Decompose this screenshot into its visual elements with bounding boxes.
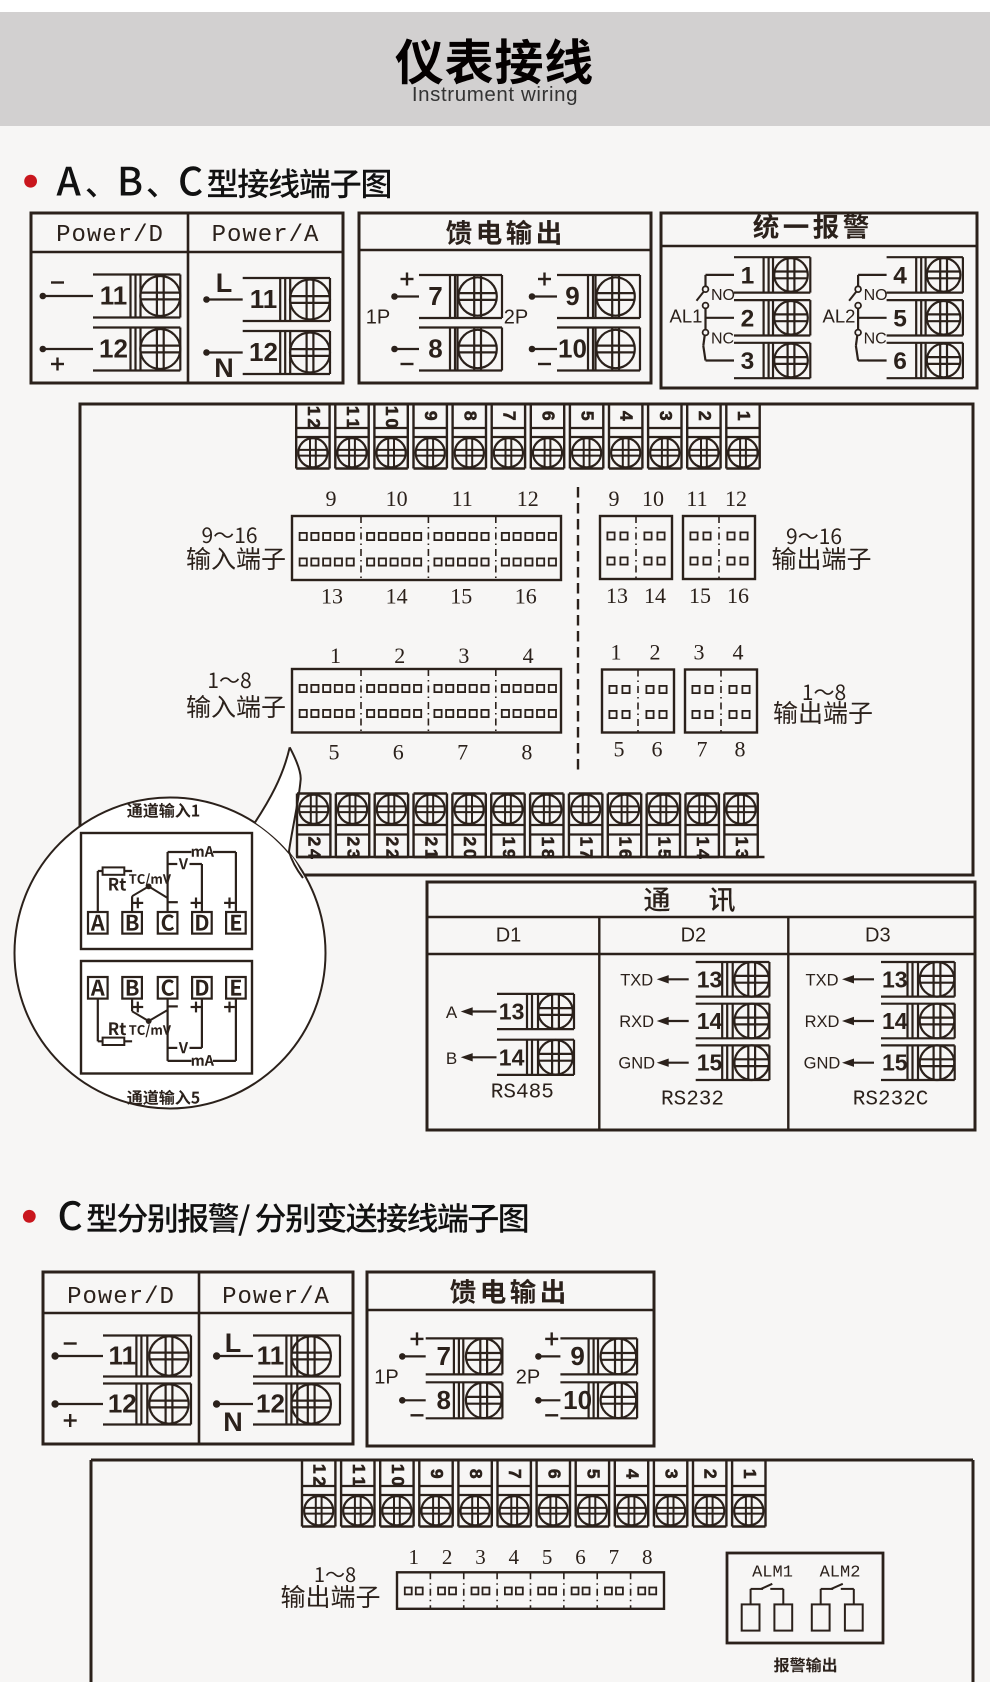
svg-text:11: 11 [109,1341,137,1371]
svg-text:15: 15 [689,583,711,608]
svg-text:3: 3 [662,1469,682,1479]
svg-text:B: B [446,1049,457,1068]
svg-text:GND: GND [804,1055,841,1073]
svg-text:A: A [446,1003,458,1022]
svg-text:6: 6 [575,1545,586,1569]
svg-text:2: 2 [304,418,324,428]
svg-text:12: 12 [517,486,539,511]
svg-text:2: 2 [305,836,325,846]
svg-text:7: 7 [505,1469,525,1479]
svg-text:4: 4 [893,262,907,289]
svg-text:2: 2 [741,305,755,332]
svg-text:RS232C: RS232C [853,1088,929,1111]
svg-text:NC: NC [711,330,734,347]
svg-text:10: 10 [558,334,587,364]
svg-text:5: 5 [583,1469,603,1479]
svg-text:16: 16 [515,584,537,609]
svg-text:8: 8 [460,411,480,421]
svg-text:7: 7 [697,737,708,762]
svg-text:1: 1 [408,1545,419,1569]
svg-text:Power/A: Power/A [222,1284,330,1311]
svg-text:7: 7 [609,1545,620,1569]
svg-text:1P: 1P [374,1366,398,1388]
svg-text:1: 1 [740,1469,760,1479]
svg-text:NO: NO [711,287,735,304]
svg-text:14: 14 [882,1008,908,1034]
svg-text:2: 2 [344,836,364,846]
svg-text:3: 3 [741,348,755,375]
svg-text:ALM2: ALM2 [820,1564,861,1583]
svg-text:11: 11 [100,281,128,311]
svg-text:1: 1 [343,418,363,428]
svg-text:RS232: RS232 [661,1088,724,1111]
svg-text:8: 8 [521,740,532,765]
svg-text:Instrument wiring: Instrument wiring [412,83,578,106]
svg-text:13: 13 [697,966,723,992]
svg-text:8: 8 [642,1545,653,1569]
svg-text:6: 6 [652,737,663,762]
svg-text:3: 3 [458,643,469,668]
svg-text:D2: D2 [681,925,707,947]
svg-text:RS485: RS485 [491,1081,554,1104]
svg-text:NO: NO [864,287,888,304]
svg-text:6: 6 [539,411,559,421]
svg-text:Power/D: Power/D [67,1284,175,1311]
svg-text:5: 5 [542,1545,553,1569]
svg-text:Power/A: Power/A [212,222,320,249]
svg-text:2: 2 [394,643,405,668]
svg-text:ALM1: ALM1 [752,1564,793,1583]
svg-text:12: 12 [256,1389,285,1419]
svg-text:1: 1 [577,836,597,846]
svg-text:5: 5 [893,305,907,332]
svg-text:1: 1 [732,836,752,846]
svg-text:2: 2 [701,1469,721,1479]
svg-text:NC: NC [864,330,887,347]
svg-text:1P: 1P [366,307,390,329]
svg-text:12: 12 [108,1389,137,1419]
svg-text:9: 9 [565,281,579,311]
svg-text:3: 3 [656,411,676,421]
svg-text:1: 1 [538,836,558,846]
svg-text:13: 13 [882,966,908,992]
svg-text:2: 2 [460,836,480,846]
svg-text:12: 12 [99,334,128,364]
svg-text:1: 1 [304,406,324,416]
svg-text:1: 1 [741,262,755,289]
svg-text:9: 9 [427,1469,447,1479]
svg-text:1: 1 [616,836,636,846]
svg-text:15: 15 [882,1050,908,1076]
svg-text:2P: 2P [504,307,528,329]
svg-text:0: 0 [388,1476,408,1486]
svg-text:1: 1 [654,836,674,846]
svg-text:14: 14 [697,1008,723,1034]
svg-text:D1: D1 [496,925,522,947]
svg-text:1: 1 [611,640,622,665]
svg-text:1: 1 [693,836,713,846]
svg-text:TXD: TXD [806,971,839,989]
svg-text:0: 0 [382,418,402,428]
svg-text:9: 9 [326,486,337,511]
svg-text:2: 2 [695,411,715,421]
svg-text:11: 11 [686,486,707,511]
svg-text:11: 11 [257,1341,285,1371]
svg-text:1: 1 [388,1464,408,1474]
svg-text:2: 2 [310,1476,330,1486]
svg-text:2: 2 [442,1545,453,1569]
svg-text:14: 14 [499,1044,525,1070]
svg-text:10: 10 [642,486,664,511]
svg-text:2P: 2P [516,1366,540,1388]
svg-text:6: 6 [393,740,404,765]
svg-text:9: 9 [609,486,620,511]
svg-text:4: 4 [509,1545,520,1569]
svg-text:10: 10 [386,486,408,511]
svg-text:6: 6 [544,1469,564,1479]
svg-text:1: 1 [734,411,754,421]
svg-text:13: 13 [499,999,525,1025]
svg-text:7: 7 [457,740,468,765]
svg-text:14: 14 [644,583,666,608]
svg-text:8: 8 [436,1385,450,1415]
svg-text:AL1: AL1 [670,306,703,327]
svg-text:AL2: AL2 [823,306,856,327]
svg-text:1: 1 [349,1464,369,1474]
svg-text:13: 13 [606,583,628,608]
svg-text:12: 12 [725,486,747,511]
svg-text:2: 2 [650,640,661,665]
svg-text:7: 7 [499,411,519,421]
svg-text:6: 6 [893,348,907,375]
svg-text:4: 4 [523,643,534,668]
svg-text:1: 1 [499,836,519,846]
svg-text:5: 5 [578,411,598,421]
svg-text:8: 8 [735,737,746,762]
svg-text:N: N [214,353,234,383]
svg-text:2: 2 [382,836,402,846]
svg-text:RXD: RXD [805,1013,840,1031]
svg-text:8: 8 [466,1469,486,1479]
svg-text:9: 9 [570,1341,584,1371]
svg-text:N: N [223,1407,243,1437]
svg-text:9: 9 [421,411,441,421]
svg-text:16: 16 [727,583,749,608]
svg-text:8: 8 [428,334,442,364]
svg-text:12: 12 [249,337,278,367]
svg-text:4: 4 [733,640,744,665]
svg-text:GND: GND [618,1055,655,1073]
svg-text:7: 7 [428,281,442,311]
svg-text:Power/D: Power/D [56,222,164,249]
svg-text:11: 11 [452,486,473,511]
svg-text:TXD: TXD [620,971,653,989]
svg-text:RXD: RXD [619,1013,654,1031]
svg-text:4: 4 [623,1469,643,1479]
svg-text:L: L [216,268,233,298]
svg-text:5: 5 [329,740,340,765]
svg-text:1: 1 [382,406,402,416]
svg-text:11: 11 [250,284,278,314]
svg-text:D3: D3 [865,925,891,947]
svg-text:1: 1 [310,1464,330,1474]
svg-text:5: 5 [614,737,625,762]
svg-text:15: 15 [697,1050,723,1076]
svg-text:1: 1 [343,406,363,416]
svg-text:14: 14 [386,584,408,609]
svg-text:1: 1 [330,643,341,668]
svg-text:2: 2 [421,836,441,846]
svg-text:L: L [225,1328,242,1358]
svg-text:1: 1 [349,1476,369,1486]
svg-text:4: 4 [617,411,637,421]
svg-text:3: 3 [694,640,705,665]
svg-text:3: 3 [475,1545,486,1569]
svg-text:15: 15 [450,584,472,609]
svg-text:7: 7 [436,1341,450,1371]
svg-text:13: 13 [321,584,343,609]
